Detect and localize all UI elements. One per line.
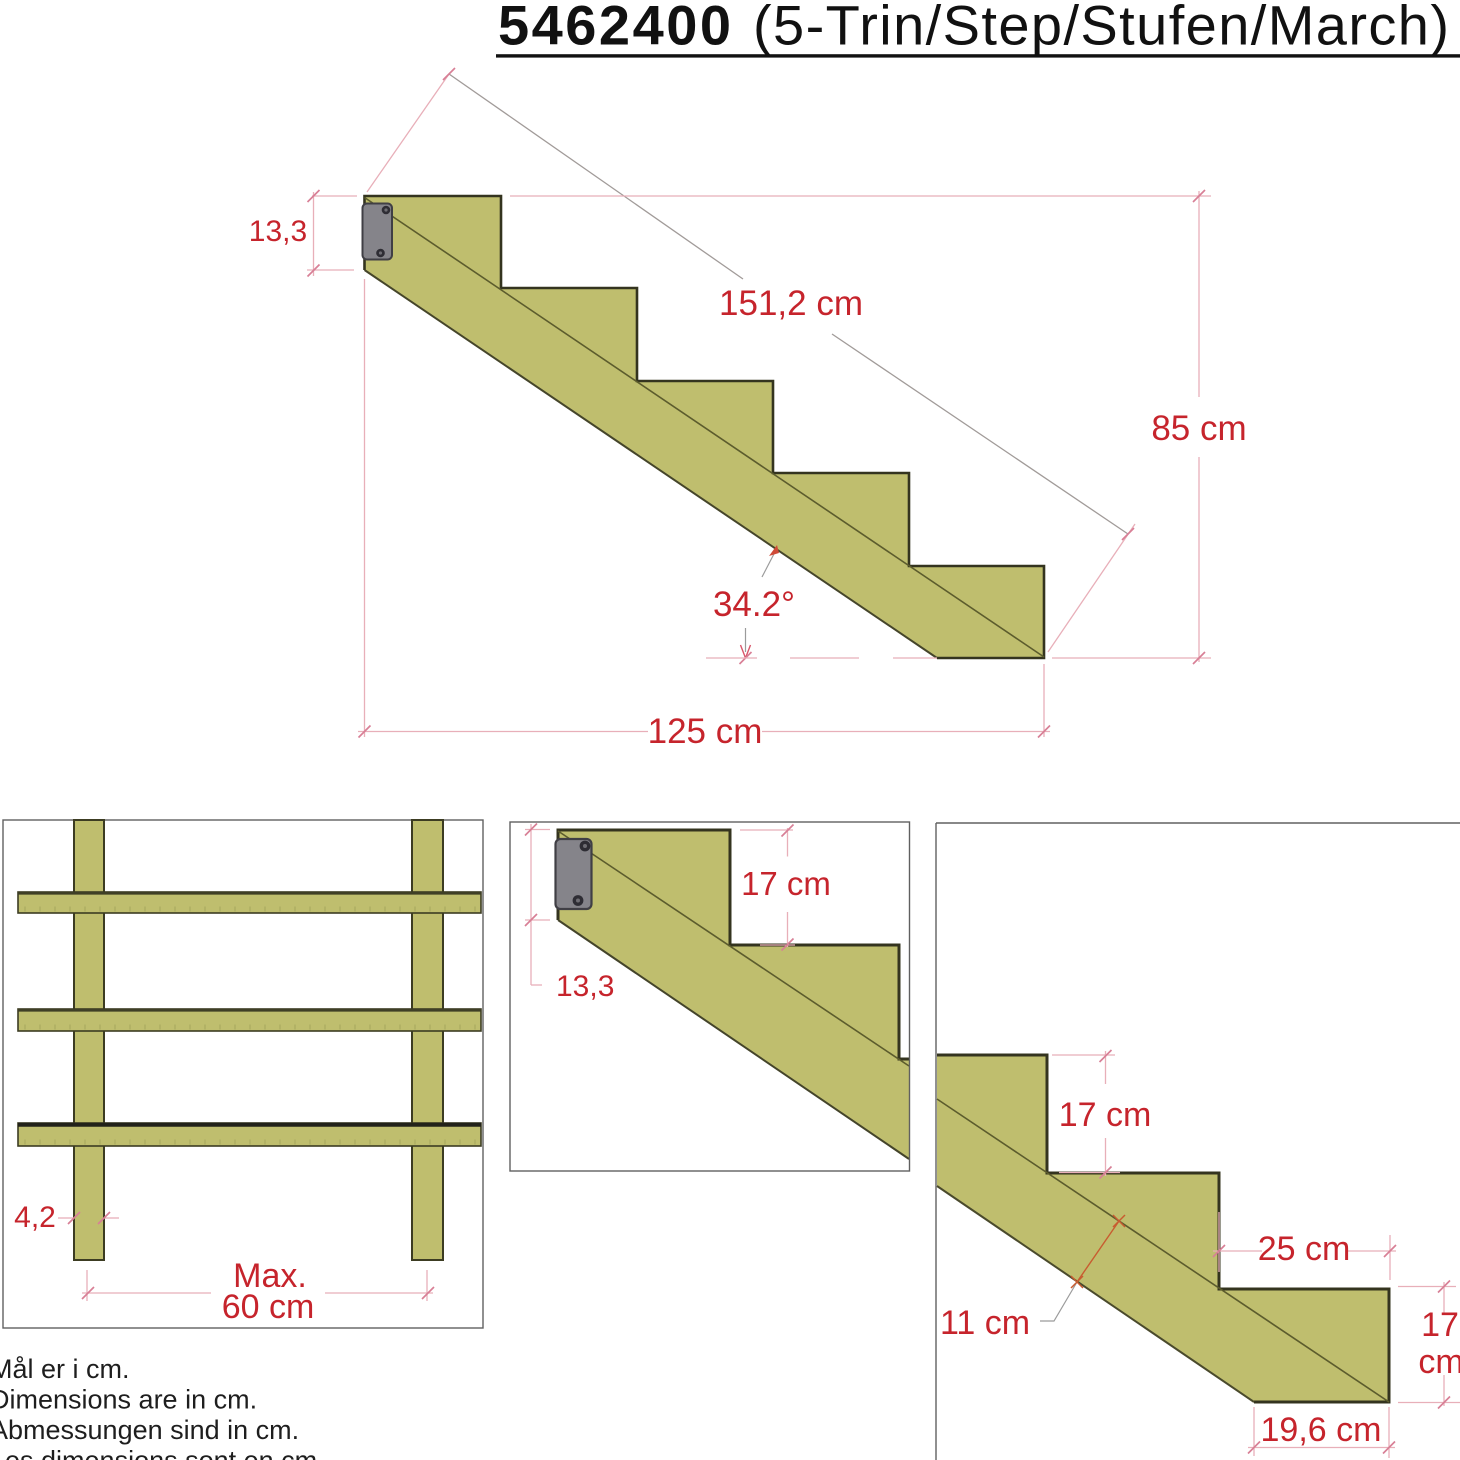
svg-text:Dimensions are in cm.: Dimensions are in cm. — [0, 1385, 257, 1415]
svg-text:17 cm: 17 cm — [741, 865, 831, 902]
svg-text:(5-Trin/Step/Stufen/March): (5-Trin/Step/Stufen/March) — [753, 0, 1449, 57]
svg-text:125 cm: 125 cm — [648, 712, 763, 751]
svg-text:4,2: 4,2 — [14, 1201, 56, 1234]
svg-text:Mål er i cm.: Mål er i cm. — [0, 1354, 130, 1384]
svg-text:17 cm: 17 cm — [1059, 1096, 1152, 1134]
svg-text:85 cm: 85 cm — [1151, 409, 1246, 448]
svg-text:cm: cm — [1418, 1343, 1460, 1381]
svg-text:151,2 cm: 151,2 cm — [719, 284, 863, 323]
svg-text:5462400: 5462400 — [498, 0, 731, 57]
svg-text:11 cm: 11 cm — [940, 1304, 1030, 1342]
svg-text:13,3: 13,3 — [556, 970, 614, 1003]
svg-text:60 cm: 60 cm — [222, 1288, 315, 1326]
svg-text:19,6 cm: 19,6 cm — [1261, 1411, 1382, 1449]
svg-text:34.2°: 34.2° — [713, 585, 795, 624]
svg-text:13,3: 13,3 — [249, 215, 307, 248]
svg-text:Abmessungen sind in cm.: Abmessungen sind in cm. — [0, 1415, 299, 1445]
svg-text:25 cm: 25 cm — [1258, 1230, 1351, 1268]
svg-text:Les dimensions sont en cm.: Les dimensions sont en cm. — [0, 1446, 325, 1460]
svg-text:17: 17 — [1421, 1306, 1459, 1344]
